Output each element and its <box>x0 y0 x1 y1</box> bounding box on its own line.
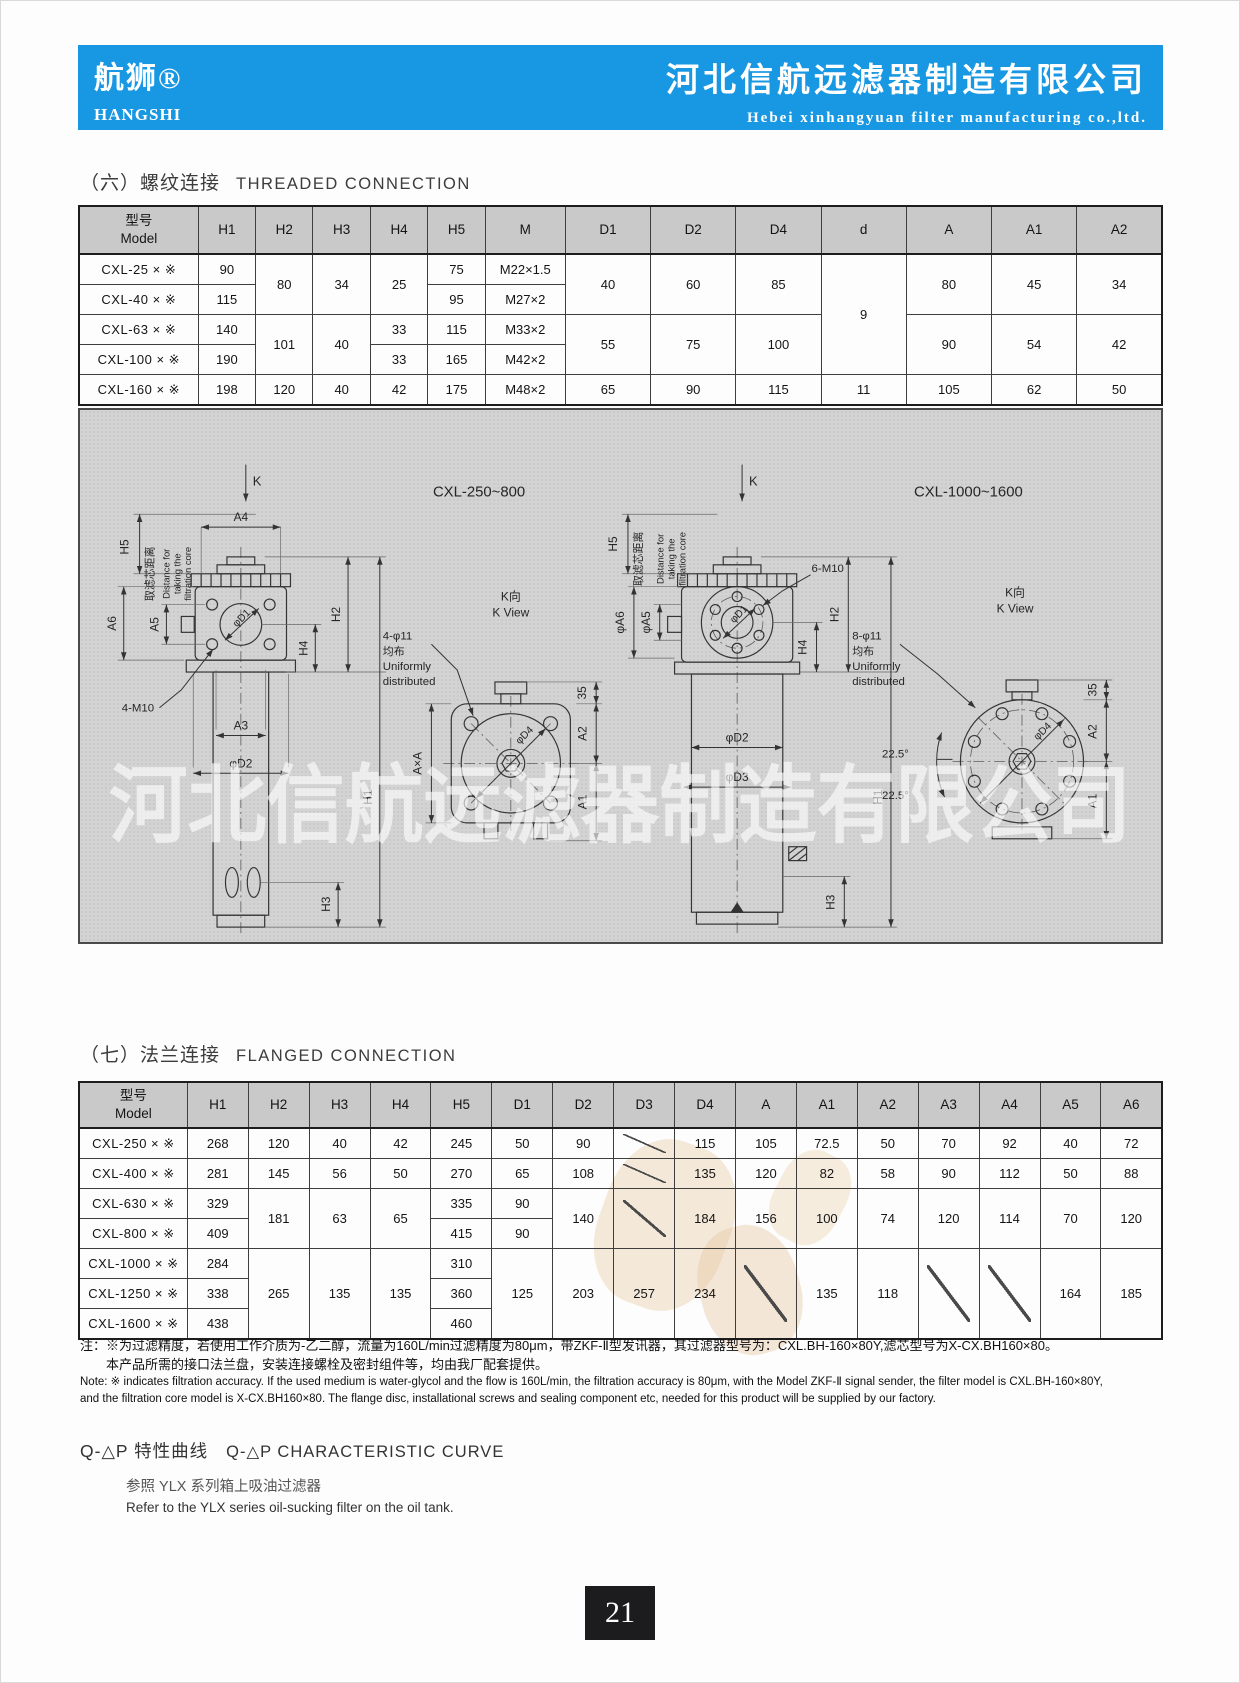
value-cell: 120 <box>248 1128 309 1159</box>
value-cell: 409 <box>187 1219 248 1249</box>
value-cell: 181 <box>248 1189 309 1249</box>
curve-reference-cn: 参照 YLX 系列箱上吸油过滤器 <box>126 1475 504 1496</box>
value-cell: 257 <box>614 1249 675 1340</box>
column-header: A1 <box>796 1082 857 1128</box>
value-cell: 72 <box>1101 1128 1162 1159</box>
column-header: H1 <box>198 206 255 254</box>
value-cell: 360 <box>431 1279 492 1309</box>
drawing-label: taking the <box>171 553 182 594</box>
value-cell: 112 <box>979 1159 1040 1189</box>
column-header: 型号 Model <box>79 206 198 254</box>
value-cell: 115 <box>675 1128 736 1159</box>
empty-cell <box>735 1249 796 1340</box>
note-en-line2: and the filtration core model is X-CX.BH… <box>80 1391 1170 1408</box>
model-cell: CXL-25 × ※ <box>79 254 198 285</box>
drawing-label: H4 <box>796 639 810 655</box>
table-row: CXL-630 × ※32918163653359014018415610074… <box>79 1189 1162 1219</box>
column-header: A1 <box>992 206 1077 254</box>
drawing-label: 4-φ11 <box>383 630 412 642</box>
value-cell: 65 <box>370 1189 431 1249</box>
column-header: D2 <box>553 1082 614 1128</box>
column-header: M <box>485 206 565 254</box>
model-cell: CXL-40 × ※ <box>79 285 198 315</box>
model-cell: CXL-160 × ※ <box>79 375 198 406</box>
drawing-label: CXL-250~800 <box>433 484 525 500</box>
value-cell: 45 <box>992 254 1077 315</box>
page-number: 21 <box>585 1586 655 1640</box>
threaded-table-wrap: 型号 ModelH1H2H3H4H5MD1D2D4dAA1A2CXL-25 × … <box>78 205 1163 406</box>
slash-mark <box>988 1265 1031 1322</box>
column-header: A6 <box>1101 1082 1162 1128</box>
value-cell: 65 <box>492 1159 553 1189</box>
value-cell: 90 <box>553 1128 614 1159</box>
value-cell: 56 <box>309 1159 370 1189</box>
value-cell: 80 <box>906 254 991 315</box>
drawing-label: K View <box>997 601 1034 615</box>
value-cell: 135 <box>370 1249 431 1340</box>
column-header: H3 <box>313 206 370 254</box>
slash-mark <box>623 1164 666 1183</box>
model-cell: CXL-800 × ※ <box>79 1219 187 1249</box>
value-cell: 329 <box>187 1189 248 1219</box>
model-cell: CXL-1600 × ※ <box>79 1309 187 1340</box>
drawing-label: H3 <box>823 894 837 910</box>
value-cell: 9 <box>821 254 906 375</box>
value-cell: 145 <box>248 1159 309 1189</box>
table-row: CXL-1000 × ※2842651351353101252032572341… <box>79 1249 1162 1279</box>
curve-section: Q-△P 特性曲线 Q-△P CHARACTERISTIC CURVE 参照 Y… <box>80 1438 504 1515</box>
value-cell: 58 <box>857 1159 918 1189</box>
value-cell: 33 <box>370 315 427 345</box>
section-title-threaded: （六）螺纹连接 THREADED CONNECTION <box>80 168 471 195</box>
column-header: d <box>821 206 906 254</box>
front-view-left <box>181 557 295 927</box>
value-cell: 40 <box>309 1128 370 1159</box>
value-cell: 90 <box>492 1219 553 1249</box>
value-cell: 60 <box>651 254 736 315</box>
value-cell: 115 <box>736 375 821 406</box>
drawing-label: A4 <box>234 510 249 524</box>
value-cell: 42 <box>370 375 427 406</box>
section-title-flanged-en: FLANGED CONNECTION <box>236 1047 456 1066</box>
value-cell: 245 <box>431 1128 492 1159</box>
value-cell: 90 <box>198 254 255 285</box>
dimension-lines <box>124 465 1107 928</box>
value-cell: 95 <box>428 285 485 315</box>
value-cell: 135 <box>309 1249 370 1340</box>
drawing-label: 35 <box>575 686 589 700</box>
column-header: 型号 Model <box>79 1082 187 1128</box>
value-cell: 140 <box>198 315 255 345</box>
drawing-label: 6-M10 <box>812 563 844 575</box>
drawing-label: K View <box>492 605 529 619</box>
section-title-threaded-en: THREADED CONNECTION <box>236 175 471 194</box>
drawing-label: K向 <box>501 590 521 604</box>
flanged-table-wrap: 型号 ModelH1H2H3H4H5D1D2D3D4AA1A2A3A4A5A6C… <box>78 1081 1163 1340</box>
value-cell: 40 <box>1040 1128 1101 1159</box>
value-cell: 460 <box>431 1309 492 1340</box>
value-cell: 114 <box>979 1189 1040 1249</box>
value-cell: 33 <box>370 345 427 375</box>
value-cell: M42×2 <box>485 345 565 375</box>
value-cell: 34 <box>313 254 370 315</box>
slash-mark <box>927 1265 970 1322</box>
value-cell: 175 <box>428 375 485 406</box>
value-cell: 135 <box>675 1159 736 1189</box>
value-cell: 65 <box>565 375 650 406</box>
value-cell: 70 <box>918 1128 979 1159</box>
value-cell: 115 <box>428 315 485 345</box>
drawing-label: K <box>253 473 262 488</box>
flanged-connection-table: 型号 ModelH1H2H3H4H5D1D2D3D4AA1A2A3A4A5A6C… <box>78 1081 1163 1340</box>
value-cell: 100 <box>736 315 821 375</box>
column-header: D4 <box>675 1082 736 1128</box>
column-header: H5 <box>428 206 485 254</box>
drawing-label: distributed <box>852 676 905 688</box>
value-cell: 156 <box>735 1189 796 1249</box>
drawing-label: A2 <box>575 726 589 741</box>
value-cell: 270 <box>431 1159 492 1189</box>
value-cell: 72.5 <box>796 1128 857 1159</box>
value-cell: 135 <box>796 1249 857 1340</box>
value-cell: 281 <box>187 1159 248 1189</box>
drawing-label: H4 <box>296 640 310 656</box>
drawing-label: 取滤芯距离 <box>631 532 645 587</box>
header-row: 型号 ModelH1H2H3H4H5MD1D2D4dAA1A2 <box>79 206 1162 254</box>
catalog-page: 航狮® HANGSHI 河北信航远滤器制造有限公司 Hebei xinhangy… <box>0 0 1240 1683</box>
model-cell: CXL-63 × ※ <box>79 315 198 345</box>
company-block: 河北信航远滤器制造有限公司 Hebei xinhangyuan filter m… <box>666 53 1147 124</box>
drawing-label: distributed <box>383 676 436 688</box>
value-cell: 120 <box>1101 1189 1162 1249</box>
drawing-label: A2 <box>1085 724 1099 739</box>
company-name-en: Hebei xinhangyuan filter manufacturing c… <box>666 110 1147 127</box>
value-cell: 125 <box>492 1249 553 1340</box>
value-cell: 50 <box>370 1159 431 1189</box>
note-cn-line2: 本产品所需的接口法兰盘，安装连接螺栓及密封组件等，均由我厂配套提供。 <box>80 1355 1170 1374</box>
column-header: D1 <box>492 1082 553 1128</box>
value-cell: 164 <box>1040 1249 1101 1340</box>
value-cell: 80 <box>256 254 313 315</box>
column-header: H2 <box>248 1082 309 1128</box>
column-header: D4 <box>736 206 821 254</box>
drawing-label: A6 <box>105 616 119 631</box>
threaded-connection-table: 型号 ModelH1H2H3H4H5MD1D2D4dAA1A2CXL-25 × … <box>78 205 1163 406</box>
value-cell: M22×1.5 <box>485 254 565 285</box>
column-header: H1 <box>187 1082 248 1128</box>
value-cell: 115 <box>198 285 255 315</box>
value-cell: 108 <box>553 1159 614 1189</box>
note-en-line1: Note: ※ indicates filtration accuracy. I… <box>80 1374 1170 1391</box>
section-title-flanged: （七）法兰连接 FLANGED CONNECTION <box>80 1040 456 1067</box>
drawing-label: filtration core <box>677 532 688 586</box>
notes-block: 注：※为过滤精度，若使用工作介质为-乙二醇，流量为160L/min过滤精度为80… <box>80 1336 1170 1408</box>
value-cell: 140 <box>553 1189 614 1249</box>
value-cell: 63 <box>309 1189 370 1249</box>
value-cell: 62 <box>992 375 1077 406</box>
brand-name-cn: 航狮® <box>94 53 182 97</box>
value-cell: 335 <box>431 1189 492 1219</box>
table-row: CXL-25 × ※9080342575M22×1.54060859804534 <box>79 254 1162 285</box>
value-cell: 42 <box>370 1128 431 1159</box>
header-row: 型号 ModelH1H2H3H4H5D1D2D3D4AA1A2A3A4A5A6 <box>79 1082 1162 1128</box>
brand-name-en: HANGSHI <box>94 105 182 125</box>
value-cell: 90 <box>918 1159 979 1189</box>
column-header: D2 <box>651 206 736 254</box>
column-header: H4 <box>370 206 427 254</box>
value-cell: 415 <box>431 1219 492 1249</box>
drawing-label: φD4 <box>514 725 536 747</box>
value-cell: 75 <box>428 254 485 285</box>
company-name-cn: 河北信航远滤器制造有限公司 <box>666 53 1147 101</box>
column-header: A3 <box>918 1082 979 1128</box>
drawing-label: Uniformly <box>852 661 900 673</box>
drawing-label: Distance for <box>655 534 666 584</box>
slash-mark <box>623 1200 666 1238</box>
value-cell: 90 <box>492 1189 553 1219</box>
value-cell: 338 <box>187 1279 248 1309</box>
slash-mark <box>623 1134 666 1153</box>
value-cell: 198 <box>198 375 255 406</box>
table-row: CXL-250 × ※2681204042245509011510572.550… <box>79 1128 1162 1159</box>
table-row: CXL-400 × ※28114556502706510813512082589… <box>79 1159 1162 1189</box>
value-cell: 92 <box>979 1128 1040 1159</box>
column-header: A <box>735 1082 796 1128</box>
section-title-flanged-cn: （七）法兰连接 <box>80 1040 220 1067</box>
value-cell: 74 <box>857 1189 918 1249</box>
drawing-label: A3 <box>234 719 249 733</box>
table-row: CXL-160 × ※1981204042175M48×265901151110… <box>79 375 1162 406</box>
drawing-label: 8-φ11 <box>852 630 881 642</box>
watermark-text: 河北信航远滤器制造有限公司 <box>109 759 1131 854</box>
empty-cell <box>918 1249 979 1340</box>
section-title-threaded-cn: （六）螺纹连接 <box>80 168 220 195</box>
drawing-label: H2 <box>827 606 841 622</box>
drawing-label: H2 <box>329 606 343 622</box>
slash-mark <box>744 1265 787 1322</box>
table-row: CXL-63 × ※1401014033115M33×2557510090544… <box>79 315 1162 345</box>
value-cell: 85 <box>736 254 821 315</box>
value-cell: M33×2 <box>485 315 565 345</box>
value-cell: 185 <box>1101 1249 1162 1340</box>
value-cell: 165 <box>428 345 485 375</box>
empty-cell <box>614 1189 675 1249</box>
empty-cell <box>979 1249 1040 1340</box>
value-cell: 90 <box>906 315 991 375</box>
value-cell: 11 <box>821 375 906 406</box>
value-cell: 75 <box>651 315 736 375</box>
curve-title: Q-△P 特性曲线 Q-△P CHARACTERISTIC CURVE <box>80 1438 504 1463</box>
empty-cell <box>614 1128 675 1159</box>
model-cell: CXL-630 × ※ <box>79 1189 187 1219</box>
column-header: H5 <box>431 1082 492 1128</box>
model-cell: CXL-1250 × ※ <box>79 1279 187 1309</box>
column-header: A2 <box>857 1082 918 1128</box>
value-cell: 234 <box>675 1249 736 1340</box>
value-cell: 310 <box>431 1249 492 1279</box>
column-header: H2 <box>256 206 313 254</box>
drawing-label: φA5 <box>639 611 653 634</box>
value-cell: 55 <box>565 315 650 375</box>
value-cell: 268 <box>187 1128 248 1159</box>
column-header: A <box>906 206 991 254</box>
value-cell: 105 <box>735 1128 796 1159</box>
value-cell: 265 <box>248 1249 309 1340</box>
curve-reference-en: Refer to the YLX series oil-sucking filt… <box>126 1500 504 1515</box>
header-banner: 航狮® HANGSHI 河北信航远滤器制造有限公司 Hebei xinhangy… <box>78 45 1163 130</box>
value-cell: 284 <box>187 1249 248 1279</box>
model-cell: CXL-250 × ※ <box>79 1128 187 1159</box>
column-header: A4 <box>979 1082 1040 1128</box>
drawing-label: A5 <box>147 617 161 632</box>
drawing-label: 均布 <box>383 645 405 658</box>
value-cell: 70 <box>1040 1189 1101 1249</box>
drawing-label: φD4 <box>1032 721 1054 743</box>
value-cell: 40 <box>313 315 370 375</box>
drawing-label: 35 <box>1085 683 1099 697</box>
drawing-label: filtration core <box>182 547 193 601</box>
curve-title-cn: Q-△P 特性曲线 <box>80 1438 208 1463</box>
column-header: D1 <box>565 206 650 254</box>
value-cell: 34 <box>1077 254 1162 315</box>
drawing-label: Distance for <box>160 549 171 599</box>
drawing-label: φD2 <box>726 731 749 745</box>
drawing-label: CXL-1000~1600 <box>914 484 1023 500</box>
curve-title-en: Q-△P CHARACTERISTIC CURVE <box>226 1442 504 1462</box>
value-cell: 50 <box>492 1128 553 1159</box>
drawing-label: φA6 <box>613 611 627 634</box>
value-cell: M27×2 <box>485 285 565 315</box>
value-cell: 190 <box>198 345 255 375</box>
model-cell: CXL-100 × ※ <box>79 345 198 375</box>
drawing-label: 4-M10 <box>122 703 154 715</box>
drawing-label: taking the <box>666 538 677 579</box>
value-cell: 438 <box>187 1309 248 1340</box>
column-header: A2 <box>1077 206 1162 254</box>
column-header: D3 <box>614 1082 675 1128</box>
value-cell: 120 <box>256 375 313 406</box>
value-cell: 90 <box>651 375 736 406</box>
drawing-label: H3 <box>319 896 333 912</box>
note-cn-line1: 注：※为过滤精度，若使用工作介质为-乙二醇，流量为160L/min过滤精度为80… <box>80 1336 1170 1355</box>
brand-block: 航狮® HANGSHI <box>94 53 182 124</box>
value-cell: 184 <box>675 1189 736 1249</box>
value-cell: 100 <box>796 1189 857 1249</box>
value-cell: 88 <box>1101 1159 1162 1189</box>
empty-cell <box>614 1159 675 1189</box>
value-cell: 40 <box>313 375 370 406</box>
drawing-label: K向 <box>1005 586 1025 600</box>
technical-drawing: KA4H5取滤芯距离Distance fortaking thefiltrati… <box>80 410 1161 942</box>
technical-drawing-box: KA4H5取滤芯距离Distance fortaking thefiltrati… <box>78 408 1163 944</box>
extension-lines <box>118 514 1113 927</box>
drawing-label: 取滤芯距离 <box>143 546 157 601</box>
value-cell: 50 <box>1040 1159 1101 1189</box>
value-cell: 50 <box>857 1128 918 1159</box>
drawing-label: φD1 <box>231 608 253 630</box>
model-cell: CXL-1000 × ※ <box>79 1249 187 1279</box>
value-cell: 40 <box>565 254 650 315</box>
drawing-label: H5 <box>606 536 620 552</box>
drawing-label: H5 <box>118 539 132 555</box>
value-cell: 120 <box>735 1159 796 1189</box>
value-cell: M48×2 <box>485 375 565 406</box>
column-header: A5 <box>1040 1082 1101 1128</box>
drawing-label: Uniformly <box>383 661 431 673</box>
model-cell: CXL-400 × ※ <box>79 1159 187 1189</box>
value-cell: 105 <box>906 375 991 406</box>
value-cell: 203 <box>553 1249 614 1340</box>
column-header: H3 <box>309 1082 370 1128</box>
value-cell: 82 <box>796 1159 857 1189</box>
drawing-label: 均布 <box>852 645 874 658</box>
value-cell: 54 <box>992 315 1077 375</box>
column-header: H4 <box>370 1082 431 1128</box>
value-cell: 118 <box>857 1249 918 1340</box>
value-cell: 50 <box>1077 375 1162 406</box>
value-cell: 42 <box>1077 315 1162 375</box>
value-cell: 101 <box>256 315 313 375</box>
value-cell: 25 <box>370 254 427 315</box>
drawing-label: K <box>749 473 758 488</box>
value-cell: 120 <box>918 1189 979 1249</box>
